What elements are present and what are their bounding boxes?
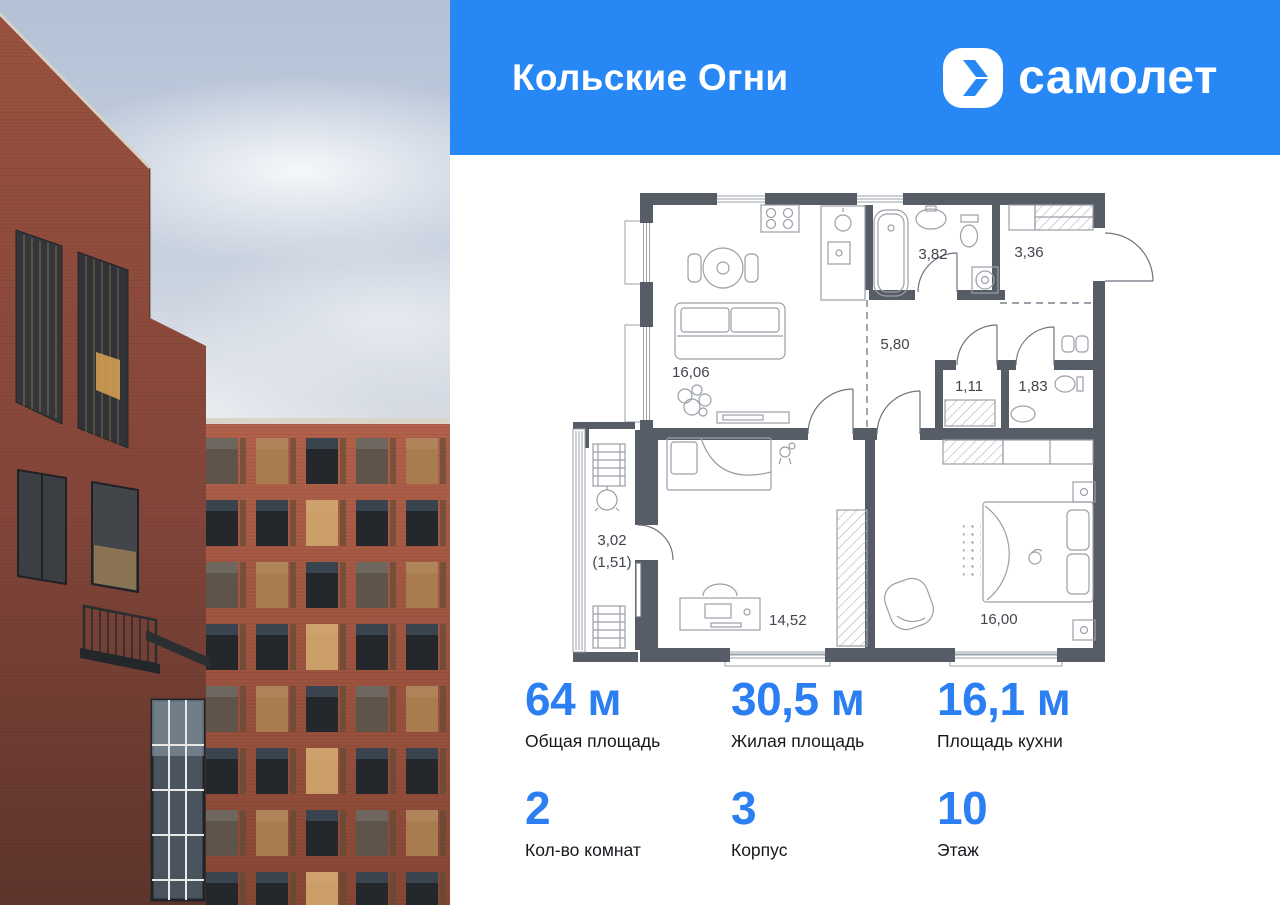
stat-floor-value: 10 <box>937 785 1197 831</box>
project-title: Кольские Огни <box>512 57 788 99</box>
brand-logo-text: самолет <box>1018 50 1218 105</box>
stat-floor-label: Этаж <box>937 840 1197 861</box>
stat-building: 3 Корпус <box>731 785 937 861</box>
floor-plan-drawing: 16,06 3,82 3,36 5,80 1,11 1,83 3,02 (1,5… <box>565 188 1165 668</box>
apartment-stats: 64 м Общая площадь 30,5 м Жилая площадь … <box>525 676 1197 861</box>
samolet-logo-icon <box>943 48 1003 108</box>
stat-living-area-value: 30,5 м <box>731 676 937 722</box>
stat-room-count-label: Кол-во комнат <box>525 840 731 861</box>
stat-room-count: 2 Кол-во комнат <box>525 785 731 861</box>
stat-kitchen-area-value: 16,1 м <box>937 676 1197 722</box>
brand-logo: самолет <box>943 48 1218 108</box>
stat-kitchen-area: 16,1 м Площадь кухни <box>937 676 1197 752</box>
room-label-entrance-hall: 3,36 <box>1014 244 1043 261</box>
room-label-bedroom: 16,00 <box>980 611 1018 628</box>
room-label-wc: 1,83 <box>1018 378 1047 395</box>
header: Кольские Огни самолет <box>450 0 1280 155</box>
room-label-balcony: 3,02 <box>597 532 626 549</box>
stat-kitchen-area-label: Площадь кухни <box>937 731 1197 752</box>
stat-living-area: 30,5 м Жилая площадь <box>731 676 937 752</box>
stat-building-label: Корпус <box>731 840 937 861</box>
room-label-children-room: 14,52 <box>769 612 807 629</box>
room-label-wardrobe: 1,11 <box>955 378 983 395</box>
project-photo-art <box>0 0 450 905</box>
room-label-balcony-reduced: (1,51) <box>592 554 631 571</box>
stat-floor: 10 Этаж <box>937 785 1197 861</box>
room-label-corridor: 5,80 <box>880 336 909 353</box>
stat-room-count-value: 2 <box>525 785 731 831</box>
room-label-bathroom: 3,82 <box>918 246 947 263</box>
stat-building-value: 3 <box>731 785 937 831</box>
stat-total-area-value: 64 м <box>525 676 731 722</box>
stat-living-area-label: Жилая площадь <box>731 731 937 752</box>
furniture <box>593 205 1095 648</box>
listing-card: Кольские Огни самолет <box>0 0 1280 905</box>
stat-total-area-label: Общая площадь <box>525 731 731 752</box>
stat-total-area: 64 м Общая площадь <box>525 676 731 752</box>
project-photo <box>0 0 450 905</box>
room-label-living-kitchen: 16,06 <box>672 364 710 381</box>
floor-plan: 16,06 3,82 3,36 5,80 1,11 1,83 3,02 (1,5… <box>565 188 1165 668</box>
